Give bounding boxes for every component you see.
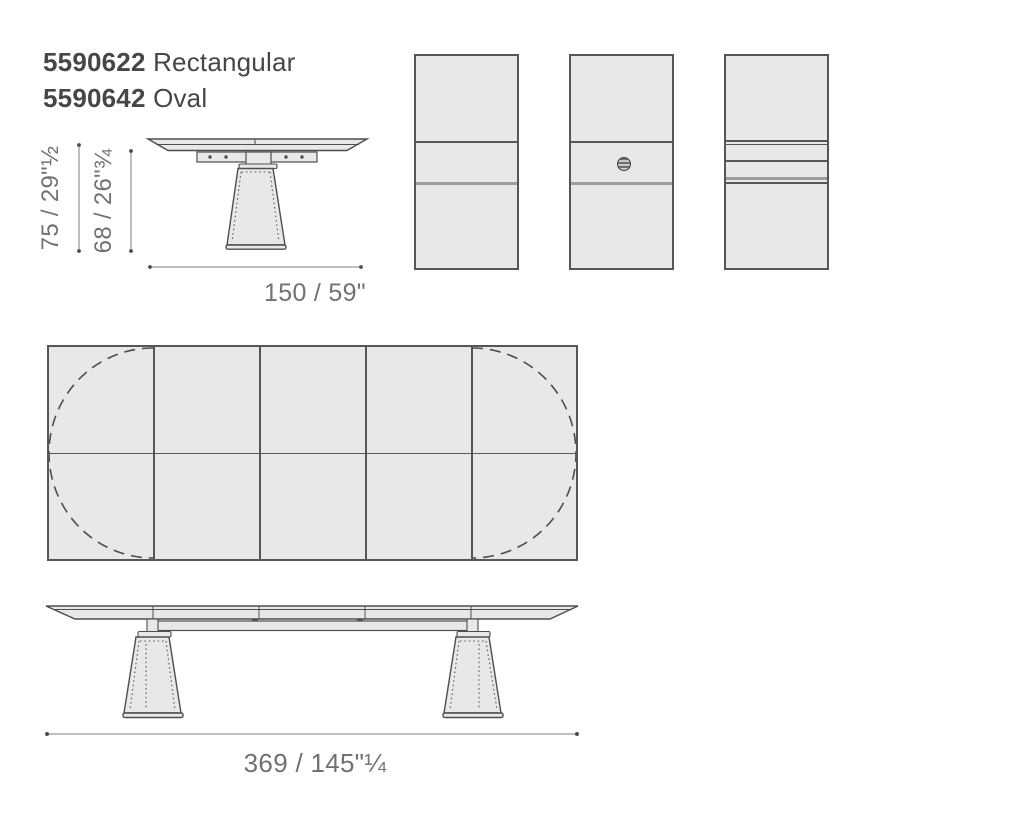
panel-leaf-edge [726, 177, 827, 180]
leg-base-left [123, 713, 183, 718]
cable-grommet-icon [617, 157, 631, 171]
panel-leaf-edge [571, 182, 672, 185]
tabletop-panel-plain [414, 54, 519, 270]
leg-front [226, 164, 286, 249]
dim-length-line [45, 732, 579, 736]
side-elevation-drawing [40, 600, 585, 765]
support-beam [153, 621, 472, 631]
panel-divider [726, 140, 827, 142]
dim-height-clearance-line [129, 149, 133, 253]
leg-column-left [147, 619, 158, 633]
leg-right [443, 632, 503, 718]
product-name-2: Oval [153, 83, 207, 113]
leaf-line [726, 144, 827, 145]
depth-label: 150 / 59" [240, 279, 390, 308]
leg-base-right [443, 713, 503, 718]
length-label: 369 / 145"¼ [150, 748, 480, 779]
product-title: 5590622 Rectangular 5590642 Oval [43, 44, 295, 116]
leaf-line [726, 160, 827, 162]
height-overall-label: 75 / 29"½ [38, 128, 64, 268]
tabletop-panel-grommet [569, 54, 674, 270]
leg-base-front [226, 245, 286, 249]
tabletop-side [46, 606, 578, 619]
product-name-1: Rectangular [153, 47, 295, 77]
height-clearance-label: 68 / 26"¾ [91, 131, 117, 271]
product-code-2: 5590642 [43, 83, 146, 113]
leg-left [123, 632, 183, 718]
dim-height-overall-line [77, 143, 81, 253]
product-line-1: 5590622 Rectangular [43, 44, 295, 80]
panel-divider [571, 141, 672, 143]
panel-divider [416, 141, 517, 143]
panel-leaf-edge [416, 182, 517, 185]
oval-outline-dashed [49, 347, 576, 559]
product-line-2: 5590642 Oval [43, 80, 295, 116]
leaf-line [726, 182, 827, 184]
spec-sheet: 5590622 Rectangular 5590642 Oval [0, 0, 1024, 817]
leg-column-right [467, 619, 478, 633]
table-top-view [47, 345, 578, 561]
tabletop-panel-extensions [724, 54, 829, 270]
dim-depth-line [148, 265, 363, 269]
product-code-1: 5590622 [43, 47, 146, 77]
